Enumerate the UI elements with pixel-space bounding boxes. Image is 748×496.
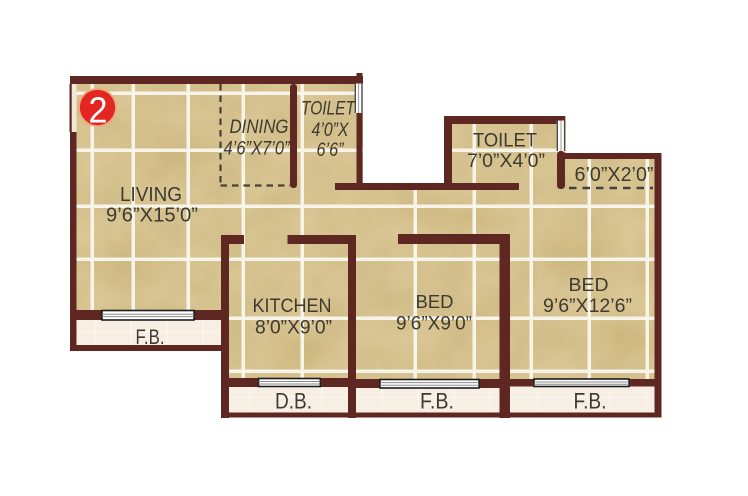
svg-text:DINING: DINING (230, 117, 289, 138)
svg-text:9’6”X12’6”: 9’6”X12’6” (543, 295, 632, 317)
svg-text:F.B.: F.B. (420, 389, 454, 414)
svg-text:4’0”X: 4’0”X (312, 119, 350, 141)
svg-text:6’0”X2’0”: 6’0”X2’0” (575, 164, 654, 186)
svg-text:7’0”X4’0”: 7’0”X4’0” (467, 150, 545, 172)
svg-text:4’6”X7’0”: 4’6”X7’0” (224, 139, 291, 160)
svg-text:6’6”: 6’6” (317, 139, 345, 161)
svg-text:TOILET: TOILET (301, 98, 357, 120)
svg-text:D.B.: D.B. (275, 389, 312, 414)
svg-text:F.B.: F.B. (574, 389, 607, 414)
svg-text:2: 2 (89, 90, 108, 131)
svg-text:BED: BED (569, 274, 609, 295)
svg-text:9’6”X15’0”: 9’6”X15’0” (106, 204, 198, 227)
svg-text:TOILET: TOILET (473, 131, 537, 152)
svg-text:9’6”X9’0”: 9’6”X9’0” (396, 314, 472, 335)
svg-text:KITCHEN: KITCHEN (253, 296, 332, 317)
svg-text:BED: BED (416, 291, 454, 312)
svg-text:F.B.: F.B. (136, 325, 165, 349)
svg-text:8’0”X9’0”: 8’0”X9’0” (255, 318, 332, 339)
